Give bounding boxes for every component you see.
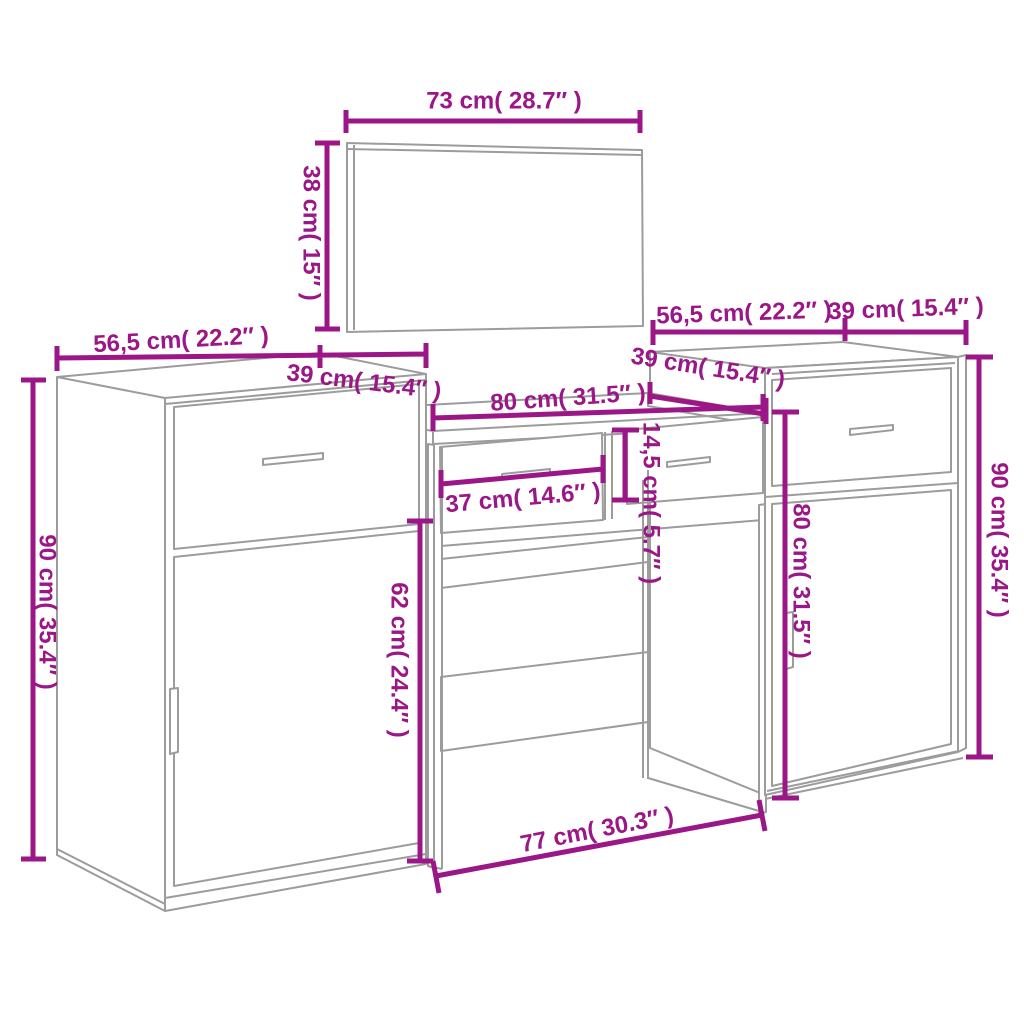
left-cabinet-door-handle (170, 688, 178, 754)
right-cabinet-depth-label: 39 cm( 15.4″ ) (828, 293, 984, 325)
dim-right-cabinet-top: 56,5 cm( 22.2″ ) 39 cm( 15.4″ ) (653, 293, 984, 345)
left-cabinet-height-label: 90 cm( 35.4″ ) (34, 534, 61, 690)
diagram-canvas: 73 cm( 28.7″ ) 38 cm( 15″ ) 56,5 cm( 22.… (0, 0, 1024, 1024)
dim-left-cabinet-height: 90 cm( 35.4″ ) (21, 380, 61, 859)
dim-line (433, 800, 765, 893)
table-drawer-divider (605, 431, 612, 520)
right-cabinet-width-label: 56,5 cm( 22.2″ ) (656, 296, 832, 329)
left-cabinet-door (174, 531, 419, 886)
left-cabinet-drawer (174, 384, 419, 549)
table-drawer-height-label: 14,5 cm( 5.7″ ) (638, 422, 665, 584)
dim-table-drawer-height: 14,5 cm( 5.7″ ) (612, 422, 665, 584)
table-base-width-label: 77 cm( 30.3″ ) (518, 802, 676, 858)
right-cabinet-height-label: 90 cm( 35.4″ ) (986, 462, 1013, 618)
dim-mirror-height: 38 cm( 15″ ) (298, 143, 341, 329)
left-cabinet (57, 353, 426, 911)
left-cabinet-width-label: 56,5 cm( 22.2″ ) (93, 322, 270, 358)
mirror-frame (347, 143, 643, 332)
dim-table-base-width: 77 cm( 30.3″ ) (433, 800, 765, 893)
dim-right-cabinet-height: 90 cm( 35.4″ ) (966, 357, 1013, 757)
mirror (347, 143, 643, 332)
right-cabinet-front-height-label: 80 cm( 31.5″ ) (788, 503, 815, 659)
mirror-width-label: 73 cm( 28.7″ ) (426, 88, 582, 115)
table-back-panel (441, 652, 648, 751)
mirror-height-label: 38 cm( 15″ ) (298, 165, 325, 301)
furniture-dimension-diagram: 73 cm( 28.7″ ) 38 cm( 15″ ) 56,5 cm( 22.… (0, 0, 1024, 1024)
dim-mirror-width: 73 cm( 28.7″ ) (346, 88, 640, 134)
table-leg-height-label: 62 cm( 24.4″ ) (386, 582, 413, 738)
